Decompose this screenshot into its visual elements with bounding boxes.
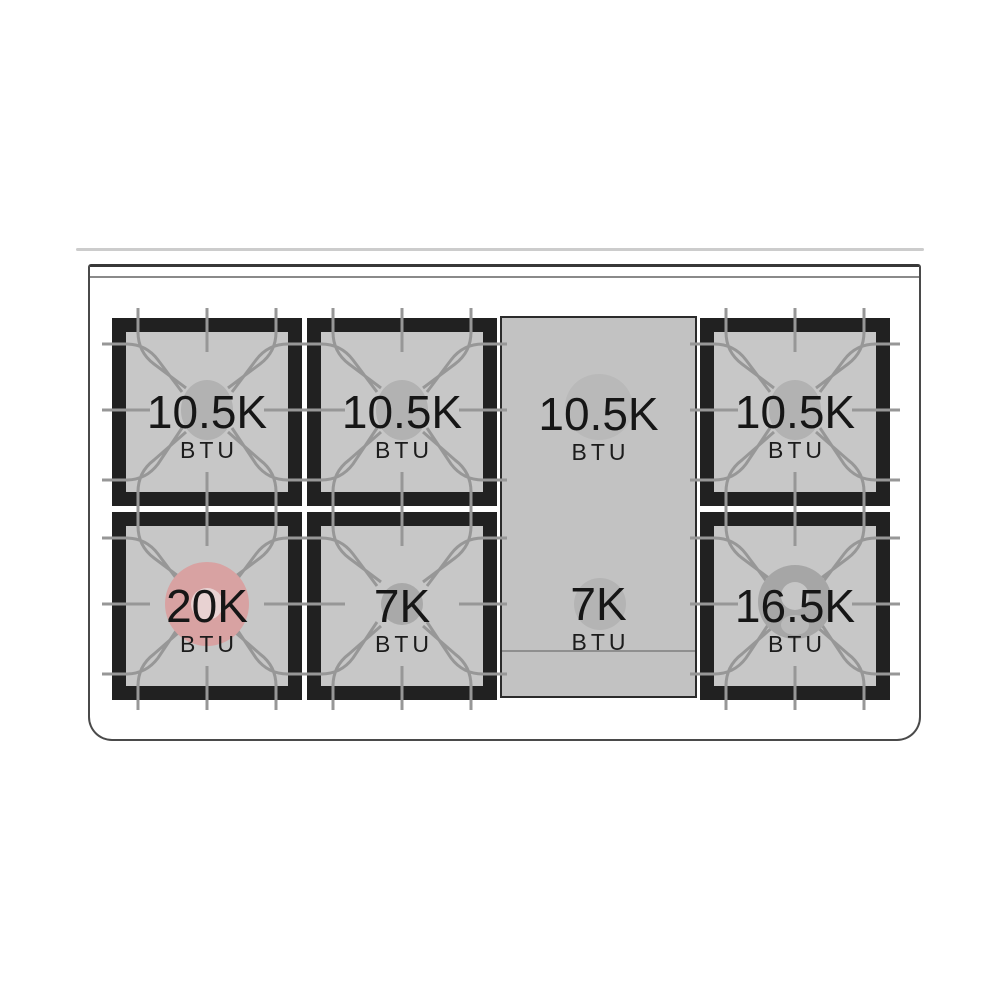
unit-label: BTU [502,440,695,464]
unit-label: BTU [112,438,302,462]
burner-label-front-center-left: 7K BTU [307,583,497,656]
cooktop-diagram: 10.5K BTU 7K BTU 10.5K BTU [0,0,1000,1000]
burner-grate-back-right: 10.5K BTU [700,318,890,506]
power-label: 10.5K [700,389,890,435]
burner-label-front-right: 16.5K BTU [700,583,890,656]
power-label: 10.5K [112,389,302,435]
burner-label-back-right: 10.5K BTU [700,389,890,462]
range-body: 10.5K BTU 7K BTU 10.5K BTU [88,264,921,741]
power-label: 20K [112,583,302,629]
burner-label-back-left: 10.5K BTU [112,389,302,462]
power-label: 7K [307,583,497,629]
power-label: 16.5K [700,583,890,629]
burner-label-griddle-front: 7K BTU [502,581,695,654]
burner-grate-back-center-left: 10.5K BTU [307,318,497,506]
burner-label-front-left: 20K BTU [112,583,302,656]
back-trim-band [90,267,919,278]
unit-label: BTU [700,438,890,462]
cooktop-back-edge-line [76,248,924,251]
burner-grate-front-right: 16.5K BTU [700,512,890,700]
power-label: 7K [502,581,695,627]
power-label: 10.5K [307,389,497,435]
unit-label: BTU [700,632,890,656]
burner-label-back-center-left: 10.5K BTU [307,389,497,462]
griddle: 10.5K BTU 7K BTU [500,316,697,698]
unit-label: BTU [307,438,497,462]
burner-grate-back-left: 10.5K BTU [112,318,302,506]
burner-label-griddle-back: 10.5K BTU [502,391,695,464]
power-label: 10.5K [502,391,695,437]
unit-label: BTU [502,630,695,654]
burner-grate-front-center-left: 7K BTU [307,512,497,700]
burner-grate-front-left: 20K BTU [112,512,302,700]
unit-label: BTU [112,632,302,656]
unit-label: BTU [307,632,497,656]
